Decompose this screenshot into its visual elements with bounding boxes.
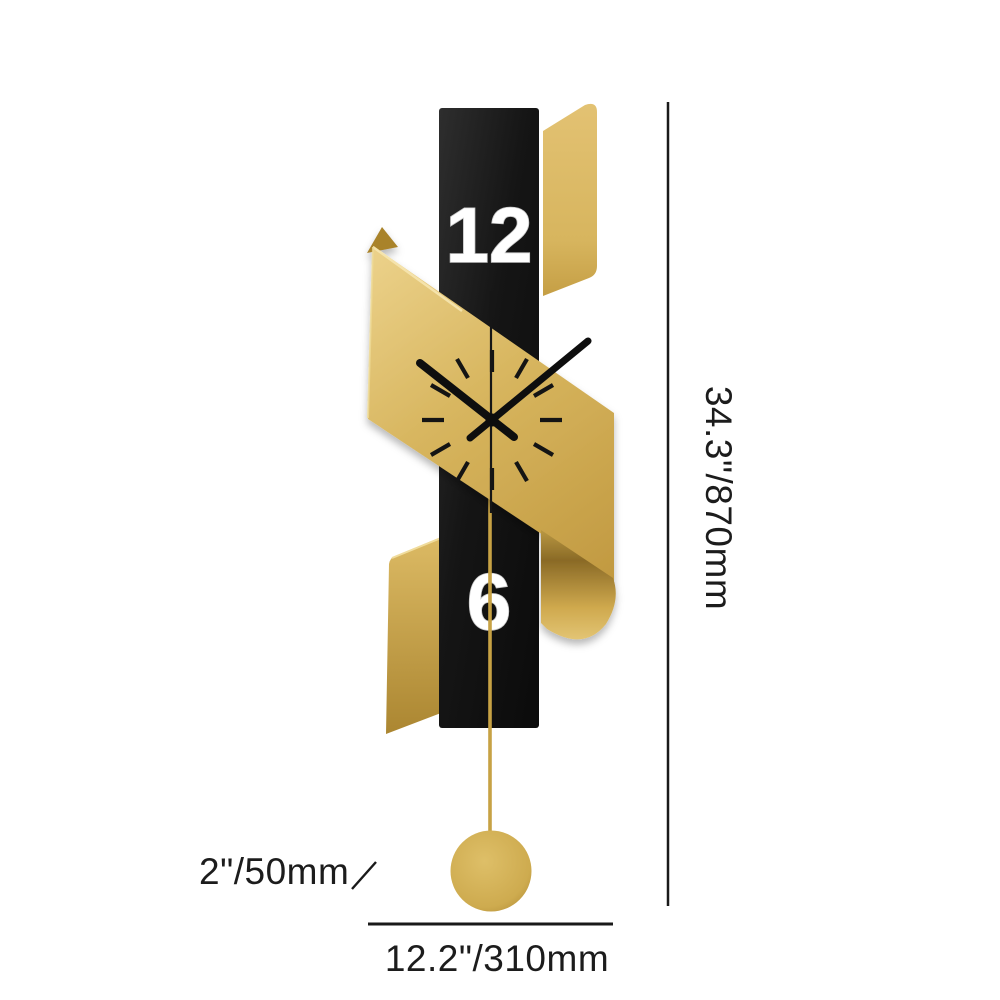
ribbon-fold-tip bbox=[367, 227, 398, 253]
hand-hub bbox=[486, 414, 499, 427]
ribbon-top-right-panel bbox=[543, 104, 597, 296]
ribbon-bottom-left-panel bbox=[386, 537, 441, 734]
numeral-12: 12 bbox=[446, 191, 533, 279]
product-dimension-image: 12 6 bbox=[0, 0, 1000, 1000]
wall-clock: 12 6 bbox=[367, 104, 616, 912]
pendulum-dimension-label: 2"/50mm bbox=[199, 851, 349, 892]
pendulum-leader-line bbox=[352, 862, 376, 889]
height-dimension-label: 34.3"/870mm bbox=[698, 386, 739, 610]
pendulum-bob bbox=[451, 831, 532, 912]
clock-dimension-illustration: 12 6 bbox=[0, 0, 1000, 1000]
width-dimension-label: 12.2"/310mm bbox=[385, 938, 609, 979]
